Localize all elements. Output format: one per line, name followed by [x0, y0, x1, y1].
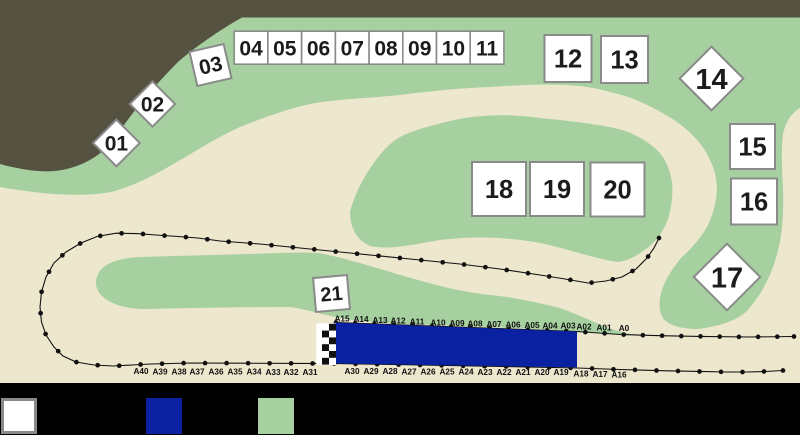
svg-text:A28: A28	[382, 367, 397, 376]
svg-text:08: 08	[374, 38, 398, 61]
svg-text:19: 19	[543, 176, 571, 204]
svg-text:01: 01	[105, 133, 129, 156]
svg-text:A14: A14	[353, 315, 368, 324]
svg-text:05: 05	[273, 38, 297, 61]
svg-text:11: 11	[476, 38, 499, 61]
svg-text:A25: A25	[439, 368, 454, 377]
svg-text:A29: A29	[363, 367, 378, 376]
svg-text:04: 04	[239, 38, 263, 61]
svg-text:A0: A0	[619, 324, 630, 333]
svg-text:A10: A10	[430, 318, 445, 327]
svg-text:A13: A13	[372, 316, 387, 325]
svg-text:16: 16	[740, 189, 768, 217]
svg-text:02: 02	[141, 94, 164, 117]
svg-text:A06: A06	[505, 321, 520, 330]
svg-text:07: 07	[341, 38, 364, 61]
svg-text:A12: A12	[390, 317, 405, 326]
svg-text:A36: A36	[208, 368, 223, 377]
svg-text:A09: A09	[449, 319, 464, 328]
svg-text:A11: A11	[410, 318, 425, 327]
svg-text:A23: A23	[477, 368, 492, 377]
svg-text:A08: A08	[467, 320, 482, 329]
svg-text:A03: A03	[560, 322, 575, 331]
svg-text:09: 09	[408, 38, 431, 61]
svg-text:A04: A04	[542, 321, 557, 330]
svg-text:14: 14	[695, 64, 727, 96]
svg-text:A40: A40	[133, 367, 148, 376]
svg-text:21: 21	[320, 283, 344, 307]
svg-text:06: 06	[307, 38, 330, 61]
svg-text:A19: A19	[553, 368, 568, 377]
svg-text:A16: A16	[611, 370, 626, 379]
svg-text:A01: A01	[596, 323, 611, 332]
svg-text:20: 20	[603, 177, 631, 205]
svg-text:A32: A32	[283, 368, 298, 377]
svg-text:A24: A24	[458, 368, 473, 377]
svg-text:A35: A35	[227, 368, 242, 377]
svg-text:A21: A21	[515, 368, 530, 377]
svg-text:A39: A39	[152, 367, 167, 376]
svg-text:13: 13	[610, 47, 638, 75]
svg-text:A07: A07	[486, 320, 501, 329]
svg-text:A33: A33	[265, 368, 280, 377]
svg-text:10: 10	[442, 38, 465, 61]
svg-text:18: 18	[485, 176, 513, 204]
svg-text:A38: A38	[171, 367, 186, 376]
svg-text:A22: A22	[496, 368, 511, 377]
svg-text:A34: A34	[246, 368, 261, 377]
svg-text:A02: A02	[576, 322, 591, 331]
svg-text:A27: A27	[401, 367, 416, 376]
svg-text:A17: A17	[592, 370, 607, 379]
svg-text:17: 17	[711, 262, 743, 294]
svg-text:A37: A37	[189, 368, 204, 377]
svg-text:A18: A18	[573, 370, 588, 379]
svg-text:A31: A31	[302, 368, 317, 377]
svg-text:A30: A30	[344, 367, 359, 376]
svg-text:A15: A15	[334, 314, 349, 323]
svg-text:15: 15	[738, 134, 766, 162]
svg-text:A26: A26	[420, 367, 435, 376]
svg-text:A20: A20	[534, 368, 549, 377]
svg-text:12: 12	[554, 46, 582, 74]
svg-text:A05: A05	[524, 321, 539, 330]
